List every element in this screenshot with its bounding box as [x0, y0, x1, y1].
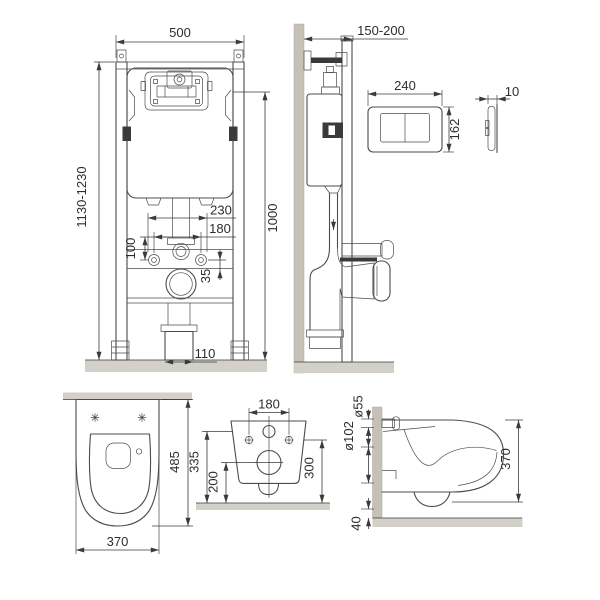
- dim-bracket-offset: 35: [198, 269, 213, 283]
- dim-bowl-depth: 485: [167, 451, 182, 473]
- view-frame-side: 150-200: [294, 23, 408, 373]
- wall-strip: [373, 407, 383, 518]
- dim-outlet-diameter: ø102: [341, 421, 356, 451]
- dim-outlet-width: 110: [195, 346, 216, 361]
- dim-frame-depth-range: 150-200: [357, 23, 405, 38]
- dim-supply-spacing: 230: [210, 203, 232, 218]
- dim-floor-gap: 40: [349, 516, 364, 530]
- dim-frame-height-range: 1130-1230: [74, 166, 89, 227]
- rail-clamp: [229, 127, 238, 142]
- dim-plate-height: 162: [447, 119, 462, 141]
- wall-strip: [63, 393, 192, 400]
- fixing-mark: [91, 413, 99, 421]
- floor-strip: [196, 503, 330, 510]
- bowl-outline-top: [76, 400, 159, 527]
- dim-bolt-height: 300: [302, 457, 317, 479]
- toilet-installation-drawing: 500 1130-1230 1000 230 180 100 35: [0, 0, 600, 600]
- dim-plate-thickness: 10: [505, 84, 519, 99]
- fixing-mark: [138, 413, 146, 421]
- dim-frame-width: 500: [169, 25, 191, 40]
- view-frame-front: 500 1130-1230 1000 230 180 100 35: [74, 25, 280, 372]
- rail-clamp: [123, 127, 132, 142]
- dim-rear-bolt-spacing: 180: [258, 397, 280, 412]
- dim-bowl-width: 370: [107, 534, 129, 549]
- bowl-outline-side: [382, 420, 504, 492]
- view-bowl-side: ø55 ø102 40 370: [341, 395, 523, 530]
- drain-bend: [165, 332, 193, 361]
- dim-flush-axis-height: 1000: [265, 204, 280, 233]
- dim-bolt-spacing: 180: [209, 221, 231, 236]
- wall-strip: [294, 24, 304, 373]
- wall-bracket-rod: [311, 58, 342, 64]
- dim-supply-offset: 100: [123, 238, 138, 260]
- outlet-horn: [373, 261, 390, 301]
- dim-inlet-diameter: ø55: [351, 395, 366, 417]
- floor-strip: [373, 518, 523, 527]
- dim-outlet-height: 200: [206, 471, 221, 493]
- outlet-socket: [166, 269, 196, 299]
- cistern-front: [127, 68, 233, 198]
- fixing-bolt: [196, 255, 207, 266]
- technical-drawing-sheet: 500 1130-1230 1000 230 180 100 35: [0, 0, 600, 600]
- floor-strip: [294, 362, 394, 373]
- dim-bowl-height: 370: [498, 448, 513, 470]
- view-bowl-top: 485 370: [63, 393, 193, 555]
- view-flush-plate-front: 240 162: [368, 78, 462, 152]
- fixing-bolt: [149, 255, 160, 266]
- cistern-side: [307, 94, 342, 186]
- dim-inlet-height: 335: [187, 451, 202, 473]
- dim-plate-width: 240: [394, 78, 416, 93]
- view-flush-plate-side: 10: [475, 84, 519, 153]
- view-bowl-rear: 180 335 200 300: [187, 397, 331, 511]
